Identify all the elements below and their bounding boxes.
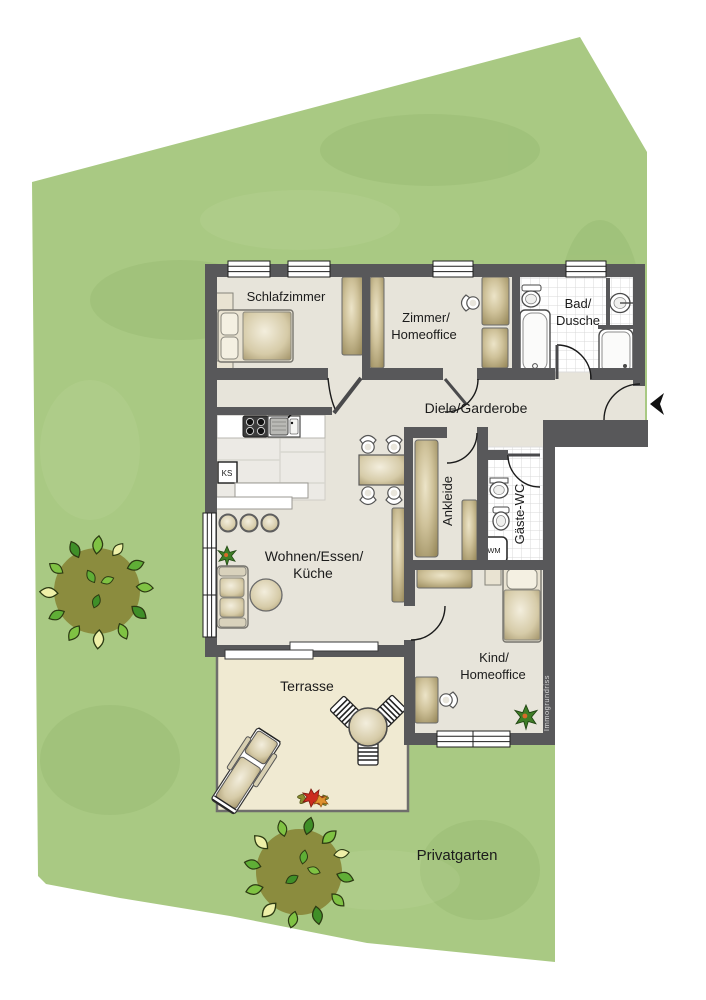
kind-label-line2: Homeoffice [460, 667, 526, 682]
wardrobe [415, 440, 438, 557]
bad-label-line1: Bad/ [565, 296, 592, 311]
wardrobe [482, 277, 509, 325]
window-icon [433, 261, 473, 277]
wc-toilet-icon [493, 507, 509, 530]
schlafzimmer-label: Schlafzimmer [247, 289, 326, 304]
living-label-line2: Küche [293, 565, 333, 581]
wardrobe [342, 277, 363, 355]
nightstand [485, 568, 501, 585]
fridge-label: KS [222, 469, 233, 478]
garden-label: Privatgarten [417, 847, 498, 864]
washer-label: WM [487, 546, 500, 555]
sofa [217, 566, 248, 628]
window-icon [228, 261, 270, 277]
wardrobe [417, 567, 472, 588]
bar-stools [220, 515, 279, 532]
floorplan-page: Privatgarten Terrasse [0, 0, 706, 1000]
wc-sink-icon [490, 478, 508, 498]
nightstand [216, 293, 233, 310]
terrace-table [349, 708, 387, 746]
double-bed [218, 310, 293, 362]
stove-icon [243, 416, 268, 437]
desk [415, 677, 438, 723]
bad-label-line2: Dusche [556, 313, 600, 328]
terrace: Terrasse [207, 651, 408, 817]
kind-label-line1: Kind/ [479, 650, 509, 665]
floorplan-svg: Privatgarten Terrasse [0, 0, 706, 1000]
wardrobe [482, 328, 508, 368]
kitchen-sink-icon [268, 412, 300, 437]
ankleide-label: Ankleide [440, 476, 455, 526]
entrance-opening [633, 386, 645, 420]
single-bed [503, 564, 541, 642]
kitchen-bar-counter [235, 483, 308, 498]
bathtub-icon [520, 310, 550, 378]
fridge-box: KS [218, 462, 237, 483]
dining-table [359, 455, 405, 485]
kitchen-bar-counter-2 [215, 497, 292, 509]
zimmer-label-line1: Zimmer/ [402, 310, 450, 325]
wardrobe [462, 500, 477, 562]
window-icon [566, 261, 606, 277]
gaeste-wc-label: Gäste-WC [512, 484, 527, 545]
sideboard [392, 508, 405, 602]
living-label-line1: Wohnen/Essen/ [265, 548, 364, 564]
terrace-label: Terrasse [280, 678, 334, 694]
window-icon [203, 513, 216, 637]
watermark-text: Immogrundriss [542, 675, 551, 731]
office-chair [462, 295, 480, 311]
wardrobe [370, 277, 384, 368]
window-icon [437, 731, 510, 747]
office-chair [440, 692, 458, 708]
entrance-arrow-icon [650, 393, 664, 415]
window-icon [288, 261, 330, 277]
diele-label: Diele/Garderobe [425, 400, 528, 416]
zimmer-label-line2: Homeoffice [391, 327, 457, 342]
toilet-icon [522, 285, 541, 307]
coffee-table [250, 579, 282, 611]
